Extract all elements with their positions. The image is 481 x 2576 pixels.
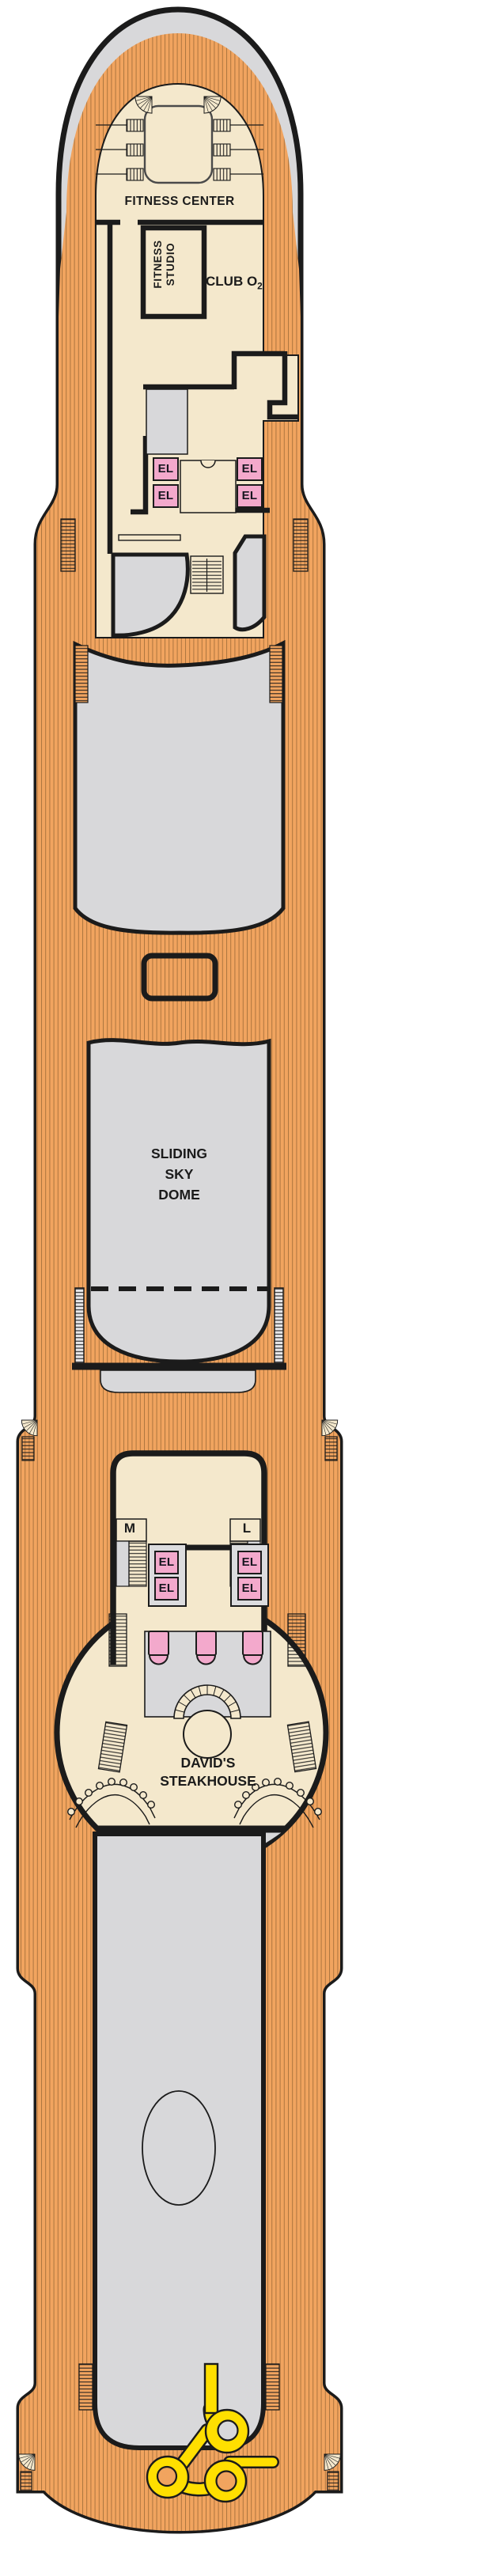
fitness-studio-line2: STUDIO [165, 221, 177, 308]
deck-plan-canvas: FITNESS CENTER FITNESS STUDIO CLUB O2 SL… [0, 0, 481, 2576]
open-deck-well-forward [75, 643, 283, 933]
stairway-m-label: M [116, 1521, 143, 1536]
club-o2-label: CLUB O2 [206, 274, 299, 291]
elevator-badge: EL [237, 484, 263, 508]
davids-steakhouse-label: DAVID'S STEAKHOUSE [119, 1754, 297, 1790]
sky-dome-line1: SLIDING [95, 1143, 263, 1164]
stairway-l-label: L [233, 1521, 260, 1536]
dining-booth-icon [149, 1631, 263, 1665]
round-table [184, 1710, 231, 1758]
sky-dome-line3: DOME [95, 1184, 263, 1205]
elevator-badge: EL [154, 1551, 179, 1574]
elevator-badge: EL [237, 1551, 262, 1574]
fitness-studio-label: FITNESS STUDIO [152, 221, 177, 308]
stairs-icon [325, 1437, 337, 1460]
steakhouse-line2: STEAKHOUSE [119, 1772, 297, 1790]
aft-casing [79, 1829, 285, 2448]
fitness-center-label: FITNESS CENTER [87, 195, 272, 209]
fitness-studio-line1: FITNESS [152, 221, 165, 308]
spa-platform [145, 106, 212, 183]
stairs-icon [191, 556, 223, 593]
terrace-starboard [235, 536, 264, 630]
elevator-badge: EL [237, 457, 263, 481]
stairs-icon [328, 2472, 339, 2492]
elevator-badge: EL [154, 1577, 179, 1601]
stairs-icon [22, 1437, 34, 1460]
sky-dome-line2: SKY [95, 1164, 263, 1184]
sliding-sky-dome-label: SLIDING SKY DOME [95, 1143, 263, 1205]
elevator-badge: EL [153, 484, 179, 508]
steakhouse-line1: DAVID'S [119, 1754, 297, 1772]
club-o2-main: CLUB O [206, 274, 257, 289]
elevator-badge: EL [153, 457, 179, 481]
stairs-icon [21, 2472, 32, 2492]
slide-tower [205, 2364, 218, 2413]
club-o2-sub: 2 [257, 280, 263, 291]
sliding-sky-dome [72, 1040, 286, 1392]
dome-garage [100, 1370, 256, 1392]
elevator-badge: EL [237, 1577, 262, 1601]
counter [119, 535, 180, 540]
deck-plan-drawing [0, 0, 481, 2576]
service-area [146, 389, 187, 454]
funnel-opening [142, 2091, 215, 2205]
